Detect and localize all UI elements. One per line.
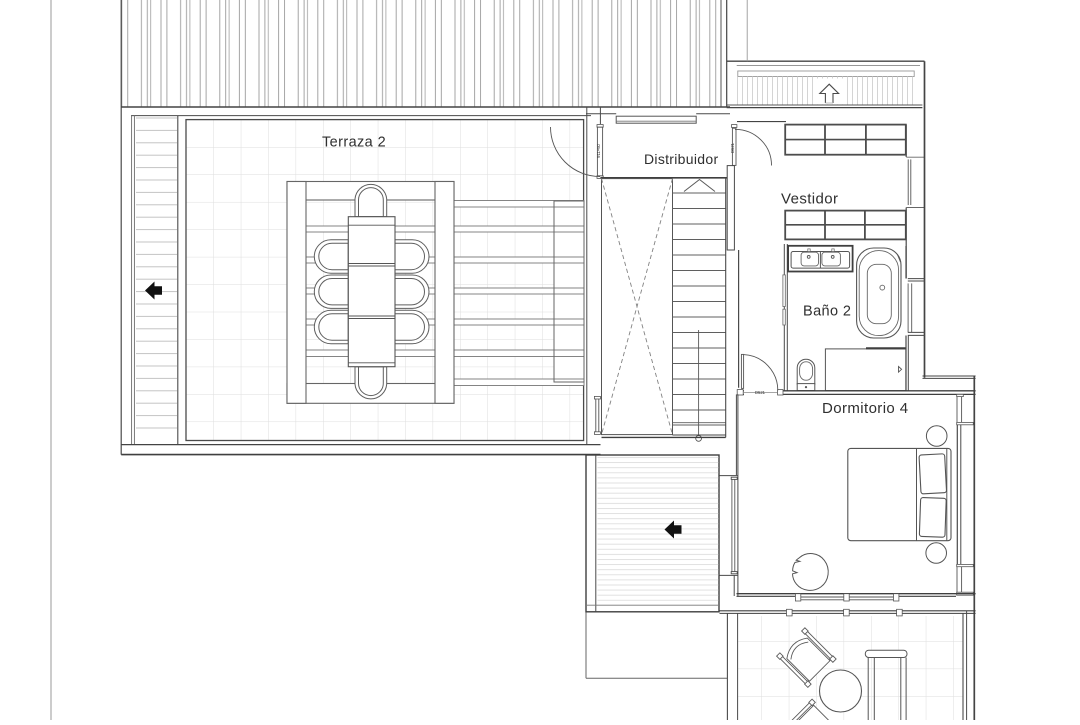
svg-text:Terraza 2: Terraza 2 — [322, 135, 386, 151]
svg-text:D521: D521 — [730, 142, 735, 153]
svg-text:Distribuidor: Distribuidor — [644, 151, 718, 167]
svg-text:D521: D521 — [755, 390, 766, 395]
svg-text:Dormitorio 4: Dormitorio 4 — [822, 400, 909, 417]
svg-text:Baño 2: Baño 2 — [803, 304, 851, 320]
svg-text:Vestidor: Vestidor — [781, 191, 838, 208]
svg-text:911+60: 911+60 — [596, 143, 601, 157]
